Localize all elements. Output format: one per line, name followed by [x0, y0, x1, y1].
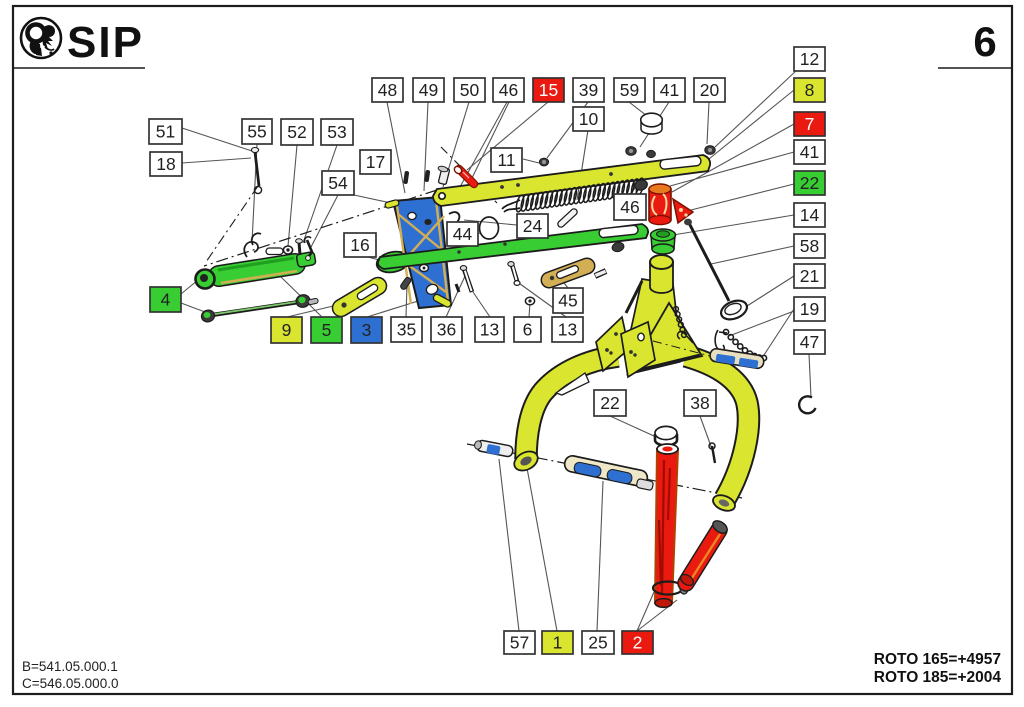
- svg-text:12: 12: [800, 49, 819, 69]
- svg-text:16: 16: [350, 235, 369, 255]
- svg-text:49: 49: [419, 80, 438, 100]
- svg-text:1: 1: [553, 633, 563, 653]
- svg-text:7: 7: [805, 114, 815, 134]
- svg-text:39: 39: [579, 80, 598, 100]
- svg-text:ROTO 165=+4957: ROTO 165=+4957: [874, 651, 1001, 668]
- svg-text:18: 18: [156, 154, 175, 174]
- svg-text:14: 14: [800, 205, 820, 225]
- svg-text:C=546.05.000.0: C=546.05.000.0: [22, 676, 118, 691]
- svg-text:24: 24: [523, 216, 543, 236]
- svg-text:8: 8: [805, 80, 815, 100]
- svg-text:4: 4: [161, 290, 171, 310]
- svg-text:54: 54: [328, 173, 348, 193]
- svg-text:58: 58: [800, 236, 819, 256]
- svg-text:59: 59: [620, 80, 639, 100]
- svg-text:6: 6: [973, 18, 996, 65]
- svg-text:SIP: SIP: [67, 18, 144, 67]
- svg-text:6: 6: [523, 320, 533, 340]
- svg-text:53: 53: [327, 122, 346, 142]
- svg-text:36: 36: [437, 320, 456, 340]
- svg-text:41: 41: [800, 142, 819, 162]
- svg-text:22: 22: [600, 393, 619, 413]
- svg-text:2: 2: [633, 633, 643, 653]
- svg-text:55: 55: [247, 122, 266, 142]
- svg-text:22: 22: [800, 173, 819, 193]
- svg-text:10: 10: [579, 109, 599, 129]
- svg-text:44: 44: [453, 224, 473, 244]
- svg-text:ROTO 185=+2004: ROTO 185=+2004: [874, 669, 1002, 686]
- svg-text:13: 13: [558, 320, 577, 340]
- svg-text:51: 51: [156, 122, 175, 142]
- svg-text:46: 46: [499, 80, 518, 100]
- svg-text:25: 25: [588, 633, 607, 653]
- svg-text:15: 15: [539, 80, 558, 100]
- svg-text:48: 48: [378, 80, 397, 100]
- svg-text:11: 11: [497, 150, 515, 170]
- svg-text:47: 47: [800, 332, 819, 352]
- svg-text:57: 57: [510, 633, 529, 653]
- svg-text:19: 19: [800, 299, 819, 319]
- svg-text:46: 46: [620, 197, 639, 217]
- svg-text:41: 41: [660, 80, 679, 100]
- svg-text:5: 5: [322, 320, 332, 340]
- svg-text:52: 52: [287, 122, 306, 142]
- svg-text:21: 21: [800, 266, 819, 286]
- svg-text:17: 17: [366, 152, 385, 172]
- svg-text:45: 45: [558, 291, 577, 311]
- svg-text:9: 9: [282, 320, 292, 340]
- svg-text:B=541.05.000.1: B=541.05.000.1: [22, 659, 118, 674]
- svg-text:35: 35: [397, 320, 416, 340]
- svg-text:20: 20: [700, 80, 720, 100]
- svg-text:13: 13: [480, 320, 499, 340]
- svg-text:38: 38: [690, 393, 709, 413]
- svg-text:3: 3: [362, 320, 372, 340]
- svg-text:50: 50: [460, 80, 480, 100]
